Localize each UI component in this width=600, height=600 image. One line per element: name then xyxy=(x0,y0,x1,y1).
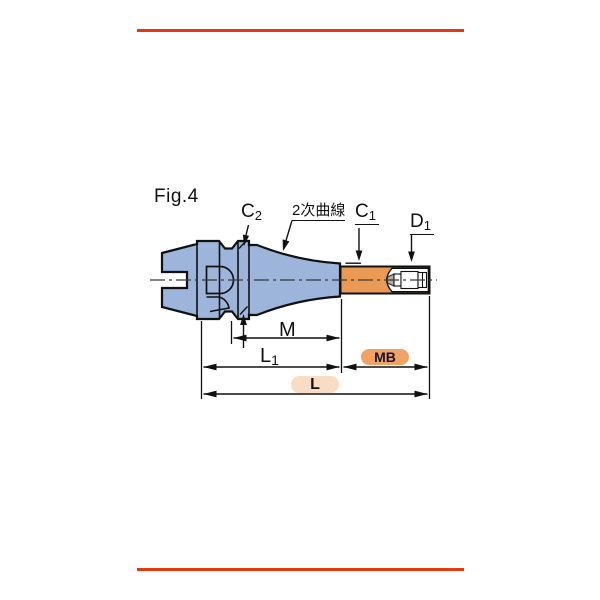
mb-dimension-badge: MB xyxy=(361,349,409,365)
l1-dimension-label: L1 xyxy=(260,346,279,367)
m-dimension-label: M xyxy=(279,320,296,340)
l-dimension-badge: L xyxy=(291,376,339,393)
c2-label: C2 xyxy=(241,202,262,222)
quadratic-curve-note: 2次曲線 xyxy=(292,203,345,221)
c1-label: C1 xyxy=(355,202,379,225)
d1-label: D1 xyxy=(410,212,434,235)
toolholder-drawing xyxy=(0,0,600,600)
